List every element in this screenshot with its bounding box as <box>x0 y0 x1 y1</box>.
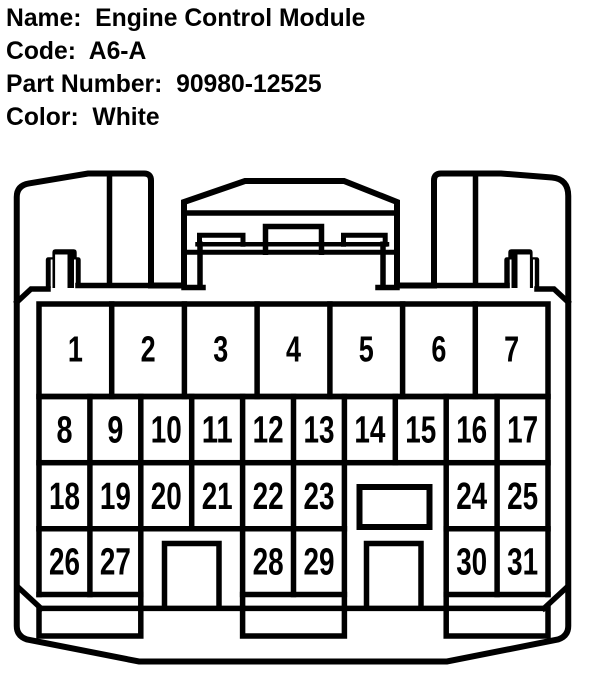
svg-text:17: 17 <box>507 410 538 452</box>
svg-text:30: 30 <box>456 542 487 584</box>
svg-text:31: 31 <box>507 542 538 584</box>
svg-text:15: 15 <box>405 410 436 452</box>
svg-text:26: 26 <box>49 542 80 584</box>
svg-text:22: 22 <box>253 476 284 518</box>
svg-text:27: 27 <box>100 542 131 584</box>
svg-text:28: 28 <box>253 542 284 584</box>
svg-text:21: 21 <box>202 476 233 518</box>
svg-text:2: 2 <box>141 329 156 370</box>
svg-text:4: 4 <box>286 329 301 370</box>
svg-text:7: 7 <box>504 329 519 370</box>
svg-text:6: 6 <box>431 329 446 370</box>
svg-text:10: 10 <box>151 410 182 452</box>
svg-text:23: 23 <box>304 476 335 518</box>
svg-text:8: 8 <box>57 410 73 452</box>
svg-text:9: 9 <box>107 410 123 452</box>
svg-text:13: 13 <box>304 410 335 452</box>
svg-text:14: 14 <box>354 410 385 452</box>
svg-text:12: 12 <box>253 410 284 452</box>
svg-text:5: 5 <box>359 329 374 370</box>
svg-text:18: 18 <box>49 476 80 518</box>
svg-text:19: 19 <box>100 476 131 518</box>
svg-text:11: 11 <box>202 410 233 452</box>
svg-text:16: 16 <box>456 410 487 452</box>
svg-text:29: 29 <box>304 542 335 584</box>
svg-text:1: 1 <box>68 329 83 370</box>
svg-text:25: 25 <box>507 476 538 518</box>
svg-text:20: 20 <box>151 476 182 518</box>
svg-text:3: 3 <box>213 329 228 370</box>
svg-text:24: 24 <box>456 476 487 518</box>
